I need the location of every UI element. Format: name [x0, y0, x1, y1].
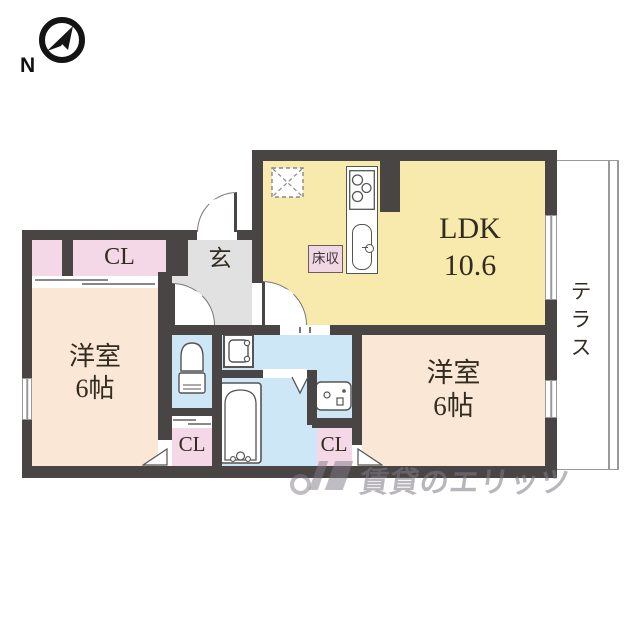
wall-segment — [62, 240, 73, 276]
closet-sliding-door — [32, 276, 158, 288]
window-bedroom-left-west — [22, 378, 32, 420]
washer-pan-icon — [223, 334, 254, 368]
bedroom-left-label: 洋室 6帖 — [32, 341, 158, 404]
compass: N — [28, 12, 98, 82]
floor-storage-badge: 床収 — [308, 245, 343, 273]
terrace-label: テラス — [562, 262, 592, 382]
compass-icon — [34, 14, 88, 68]
wall-segment — [166, 240, 188, 276]
kitchen-sink-icon — [352, 224, 372, 270]
wall-segment — [158, 408, 212, 416]
wall-segment — [352, 325, 362, 445]
closet-bottom-left-label: CL — [172, 432, 212, 458]
ldk-name: LDK — [390, 211, 550, 248]
wall-segment — [22, 230, 32, 378]
wall-segment — [312, 418, 352, 428]
wall-segment — [545, 300, 557, 380]
toilet-icon — [177, 341, 207, 403]
floor-storage-label: 床収 — [312, 251, 339, 266]
window-bedroom-right-east — [545, 380, 557, 418]
closet-bottom-right-label: CL — [316, 432, 352, 458]
bedroom-left-name: 洋室 — [32, 341, 158, 373]
wall-segment — [237, 230, 252, 240]
wall-segment — [545, 150, 557, 215]
refrigerator-space-icon — [271, 167, 304, 198]
washroom-sliding-door — [280, 325, 330, 335]
wall-segment — [252, 150, 557, 161]
stove-icon — [349, 170, 375, 210]
watermark-logo — [288, 456, 356, 496]
watermark: 賃貸のエリッツ — [288, 456, 588, 500]
watermark-text: 賃貸のエリッツ — [357, 459, 573, 501]
bedroom-right-area: 6帖 — [362, 390, 545, 423]
bedroom-right-label: 洋室 6帖 — [362, 357, 545, 423]
bedroom-left-area: 6帖 — [32, 373, 158, 405]
ldk-label: LDK 10.6 — [390, 211, 550, 284]
entry-closet-label: CL — [73, 243, 166, 272]
front-door-swing — [197, 192, 237, 232]
terrace-edge-line-outer — [617, 160, 619, 470]
wall-segment — [252, 150, 263, 283]
wall-segment — [158, 325, 280, 335]
closet-sliding-door — [172, 416, 212, 428]
compass-north-label: N — [20, 54, 35, 78]
ldk-area: 10.6 — [390, 248, 550, 285]
genkan-label: 玄 — [188, 245, 252, 273]
wall-segment — [222, 370, 263, 378]
terrace-edge-line-inner — [608, 160, 610, 470]
bath-folding-door-icon — [291, 376, 309, 395]
wall-segment — [212, 335, 222, 466]
bathtub-icon — [219, 382, 262, 464]
bedroom-left-door-wedge — [142, 448, 168, 466]
wall-segment — [380, 160, 400, 212]
vanity-sink-icon — [315, 381, 352, 411]
wall-segment — [22, 230, 197, 240]
wall-segment — [330, 325, 557, 335]
bedroom-right-name: 洋室 — [362, 357, 545, 390]
